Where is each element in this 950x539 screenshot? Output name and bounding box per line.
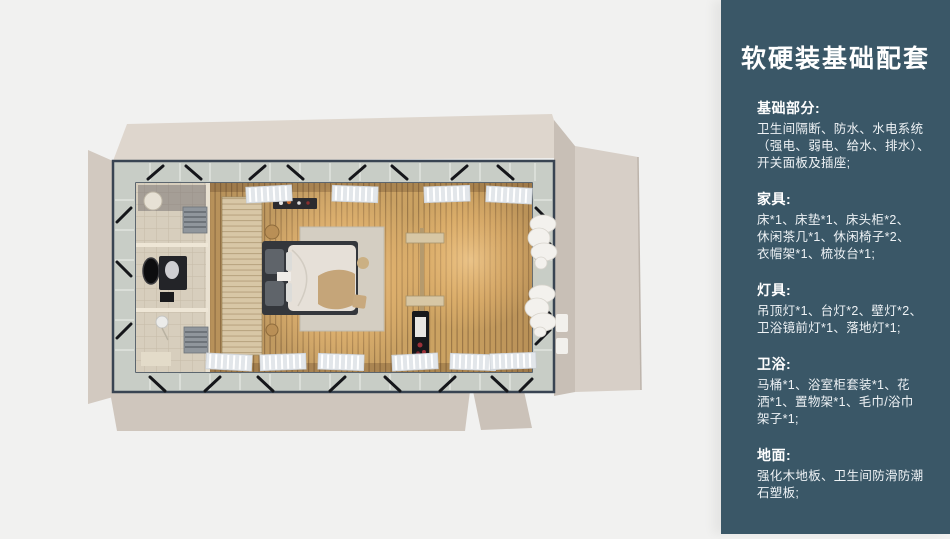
section-heading: 家具: — [757, 189, 928, 209]
section-line: 休闲茶几*1、休闲椅子*2、 — [757, 229, 928, 246]
section-line: 卫浴镜前灯*1、落地灯*1; — [757, 320, 928, 337]
section-line: 衣帽架*1、梳妆台*1; — [757, 246, 928, 263]
vanity-mirror — [143, 258, 159, 284]
toilet — [156, 316, 168, 328]
floorplan-figure — [0, 0, 721, 534]
section-line: 床*1、床垫*1、床头柜*2、 — [757, 212, 928, 229]
section-line: 架子*1; — [757, 411, 928, 428]
section-line: 开关面板及插座; — [757, 155, 928, 172]
section-lighting: 灯具: 吊顶灯*1、台灯*2、壁灯*2、 卫浴镜前灯*1、落地灯*1; — [757, 280, 928, 337]
lamp-glow-2 — [398, 188, 542, 332]
wash-basin — [165, 261, 179, 279]
slide: 软硬装基础配套 基础部分: 卫生间隔断、防水、水电系统 （强电、弱电、给水、排水… — [0, 0, 950, 534]
shower-tray — [144, 192, 162, 210]
section-flooring: 地面: 强化木地板、卫生间防滑防潮 石塑板; — [757, 445, 928, 502]
bath-mat — [141, 352, 171, 366]
section-line: 洒*1、置物架*1、毛巾/浴巾 — [757, 394, 928, 411]
bathroom-wall-1 — [136, 243, 208, 247]
panel-sections: 基础部分: 卫生间隔断、防水、水电系统 （强电、弱电、给水、排水）、 开关面板及… — [721, 74, 950, 502]
section-line: 吊顶灯*1、台灯*2、壁灯*2、 — [757, 303, 928, 320]
throw-blanket — [318, 270, 355, 310]
bedside-tray — [277, 272, 291, 281]
section-furniture: 家具: 床*1、床垫*1、床头柜*2、 休闲茶几*1、休闲椅子*2、 衣帽架*1… — [757, 189, 928, 263]
floor-cushion — [352, 294, 367, 309]
shelf-1 — [406, 233, 444, 243]
section-heading: 地面: — [757, 445, 928, 465]
section-line: 强化木地板、卫生间防滑防潮 — [757, 468, 928, 485]
floorplan-render — [0, 0, 721, 534]
section-heading: 基础部分: — [757, 98, 928, 118]
section-basics: 基础部分: 卫生间隔断、防水、水电系统 （强电、弱电、给水、排水）、 开关面板及… — [757, 98, 928, 172]
panel-title: 软硬装基础配套 — [721, 44, 950, 74]
basket-1 — [265, 225, 279, 239]
section-line: 马桶*1、浴室柜套装*1、花 — [757, 377, 928, 394]
towel-radiator-1 — [183, 207, 207, 233]
bottom-wall-flap — [110, 391, 470, 431]
section-line: 石塑板; — [757, 485, 928, 502]
section-line: （强电、弱电、给水、排水）、 — [757, 138, 928, 155]
info-panel: 软硬装基础配套 基础部分: 卫生间隔断、防水、水电系统 （强电、弱电、给水、排水… — [721, 0, 950, 534]
section-line: 卫生间隔断、防水、水电系统 — [757, 121, 928, 138]
section-heading: 灯具: — [757, 280, 928, 300]
section-sanitary: 卫浴: 马桶*1、浴室柜套装*1、花 洒*1、置物架*1、毛巾/浴巾 架子*1; — [757, 354, 928, 428]
shelf-2 — [406, 296, 444, 306]
pillow-3 — [286, 252, 292, 271]
section-heading: 卫浴: — [757, 354, 928, 374]
pouf — [357, 257, 369, 269]
bottom-right-flap — [473, 391, 532, 430]
towel-radiator-2 — [184, 327, 208, 353]
pillow-2 — [265, 281, 284, 306]
headboard-panel — [222, 197, 262, 355]
left-wall-flap — [88, 150, 113, 404]
basket-2 — [266, 324, 278, 336]
bathroom — [136, 183, 210, 372]
pillow-4 — [286, 283, 292, 302]
right-wall-edge — [554, 120, 575, 396]
pillow-1 — [265, 249, 284, 274]
vanity-stool — [160, 292, 174, 302]
right-wall-flap — [575, 146, 641, 392]
bathroom-wall-2 — [136, 308, 208, 312]
